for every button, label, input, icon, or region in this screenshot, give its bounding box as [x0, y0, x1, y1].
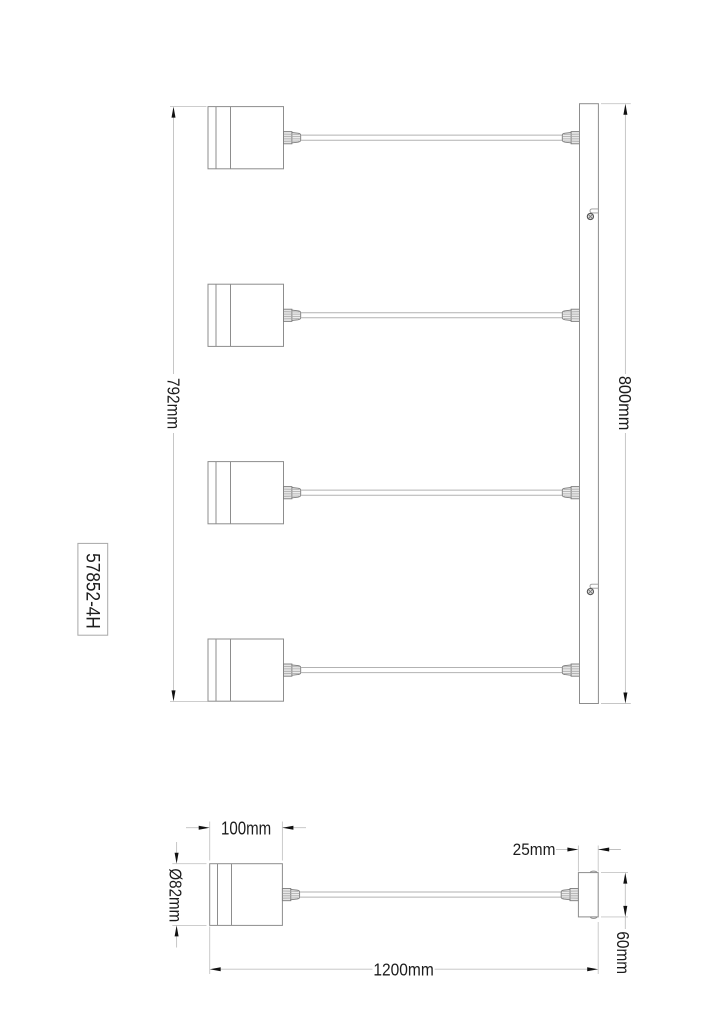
svg-text:57852-4H: 57852-4H — [82, 553, 104, 629]
svg-text:1200mm: 1200mm — [373, 960, 433, 980]
svg-text:25mm: 25mm — [513, 842, 556, 859]
svg-text:792mm: 792mm — [163, 378, 182, 429]
svg-text:100mm: 100mm — [221, 818, 271, 839]
svg-text:Ø82mm: Ø82mm — [165, 868, 184, 922]
svg-text:60mm: 60mm — [613, 931, 633, 974]
svg-text:800mm: 800mm — [615, 376, 635, 431]
